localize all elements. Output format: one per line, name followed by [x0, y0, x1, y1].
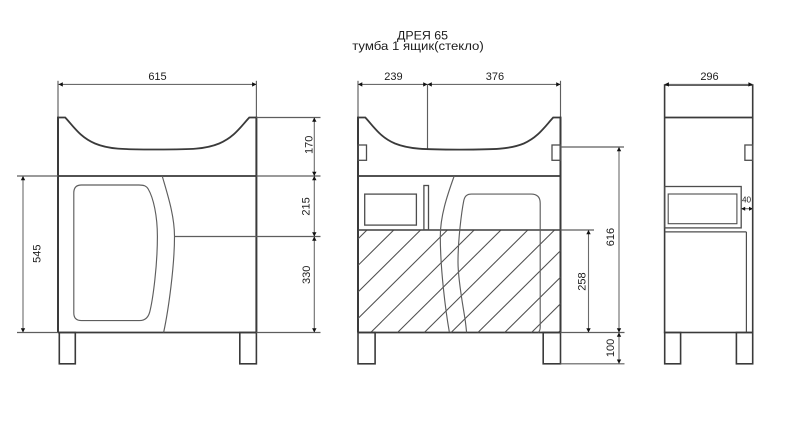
svg-text:170: 170	[303, 136, 315, 154]
svg-text:100: 100	[605, 339, 617, 357]
svg-text:40: 40	[742, 195, 752, 204]
svg-text:545: 545	[32, 245, 44, 263]
svg-text:239: 239	[384, 71, 402, 83]
svg-text:616: 616	[605, 228, 617, 246]
svg-text:376: 376	[486, 71, 504, 83]
svg-text:258: 258	[577, 272, 589, 290]
svg-text:296: 296	[700, 71, 718, 83]
svg-text:тумба 1 ящик(стекло): тумба 1 ящик(стекло)	[352, 39, 484, 53]
svg-text:615: 615	[148, 71, 166, 83]
svg-text:215: 215	[301, 197, 313, 215]
svg-text:330: 330	[301, 266, 313, 284]
